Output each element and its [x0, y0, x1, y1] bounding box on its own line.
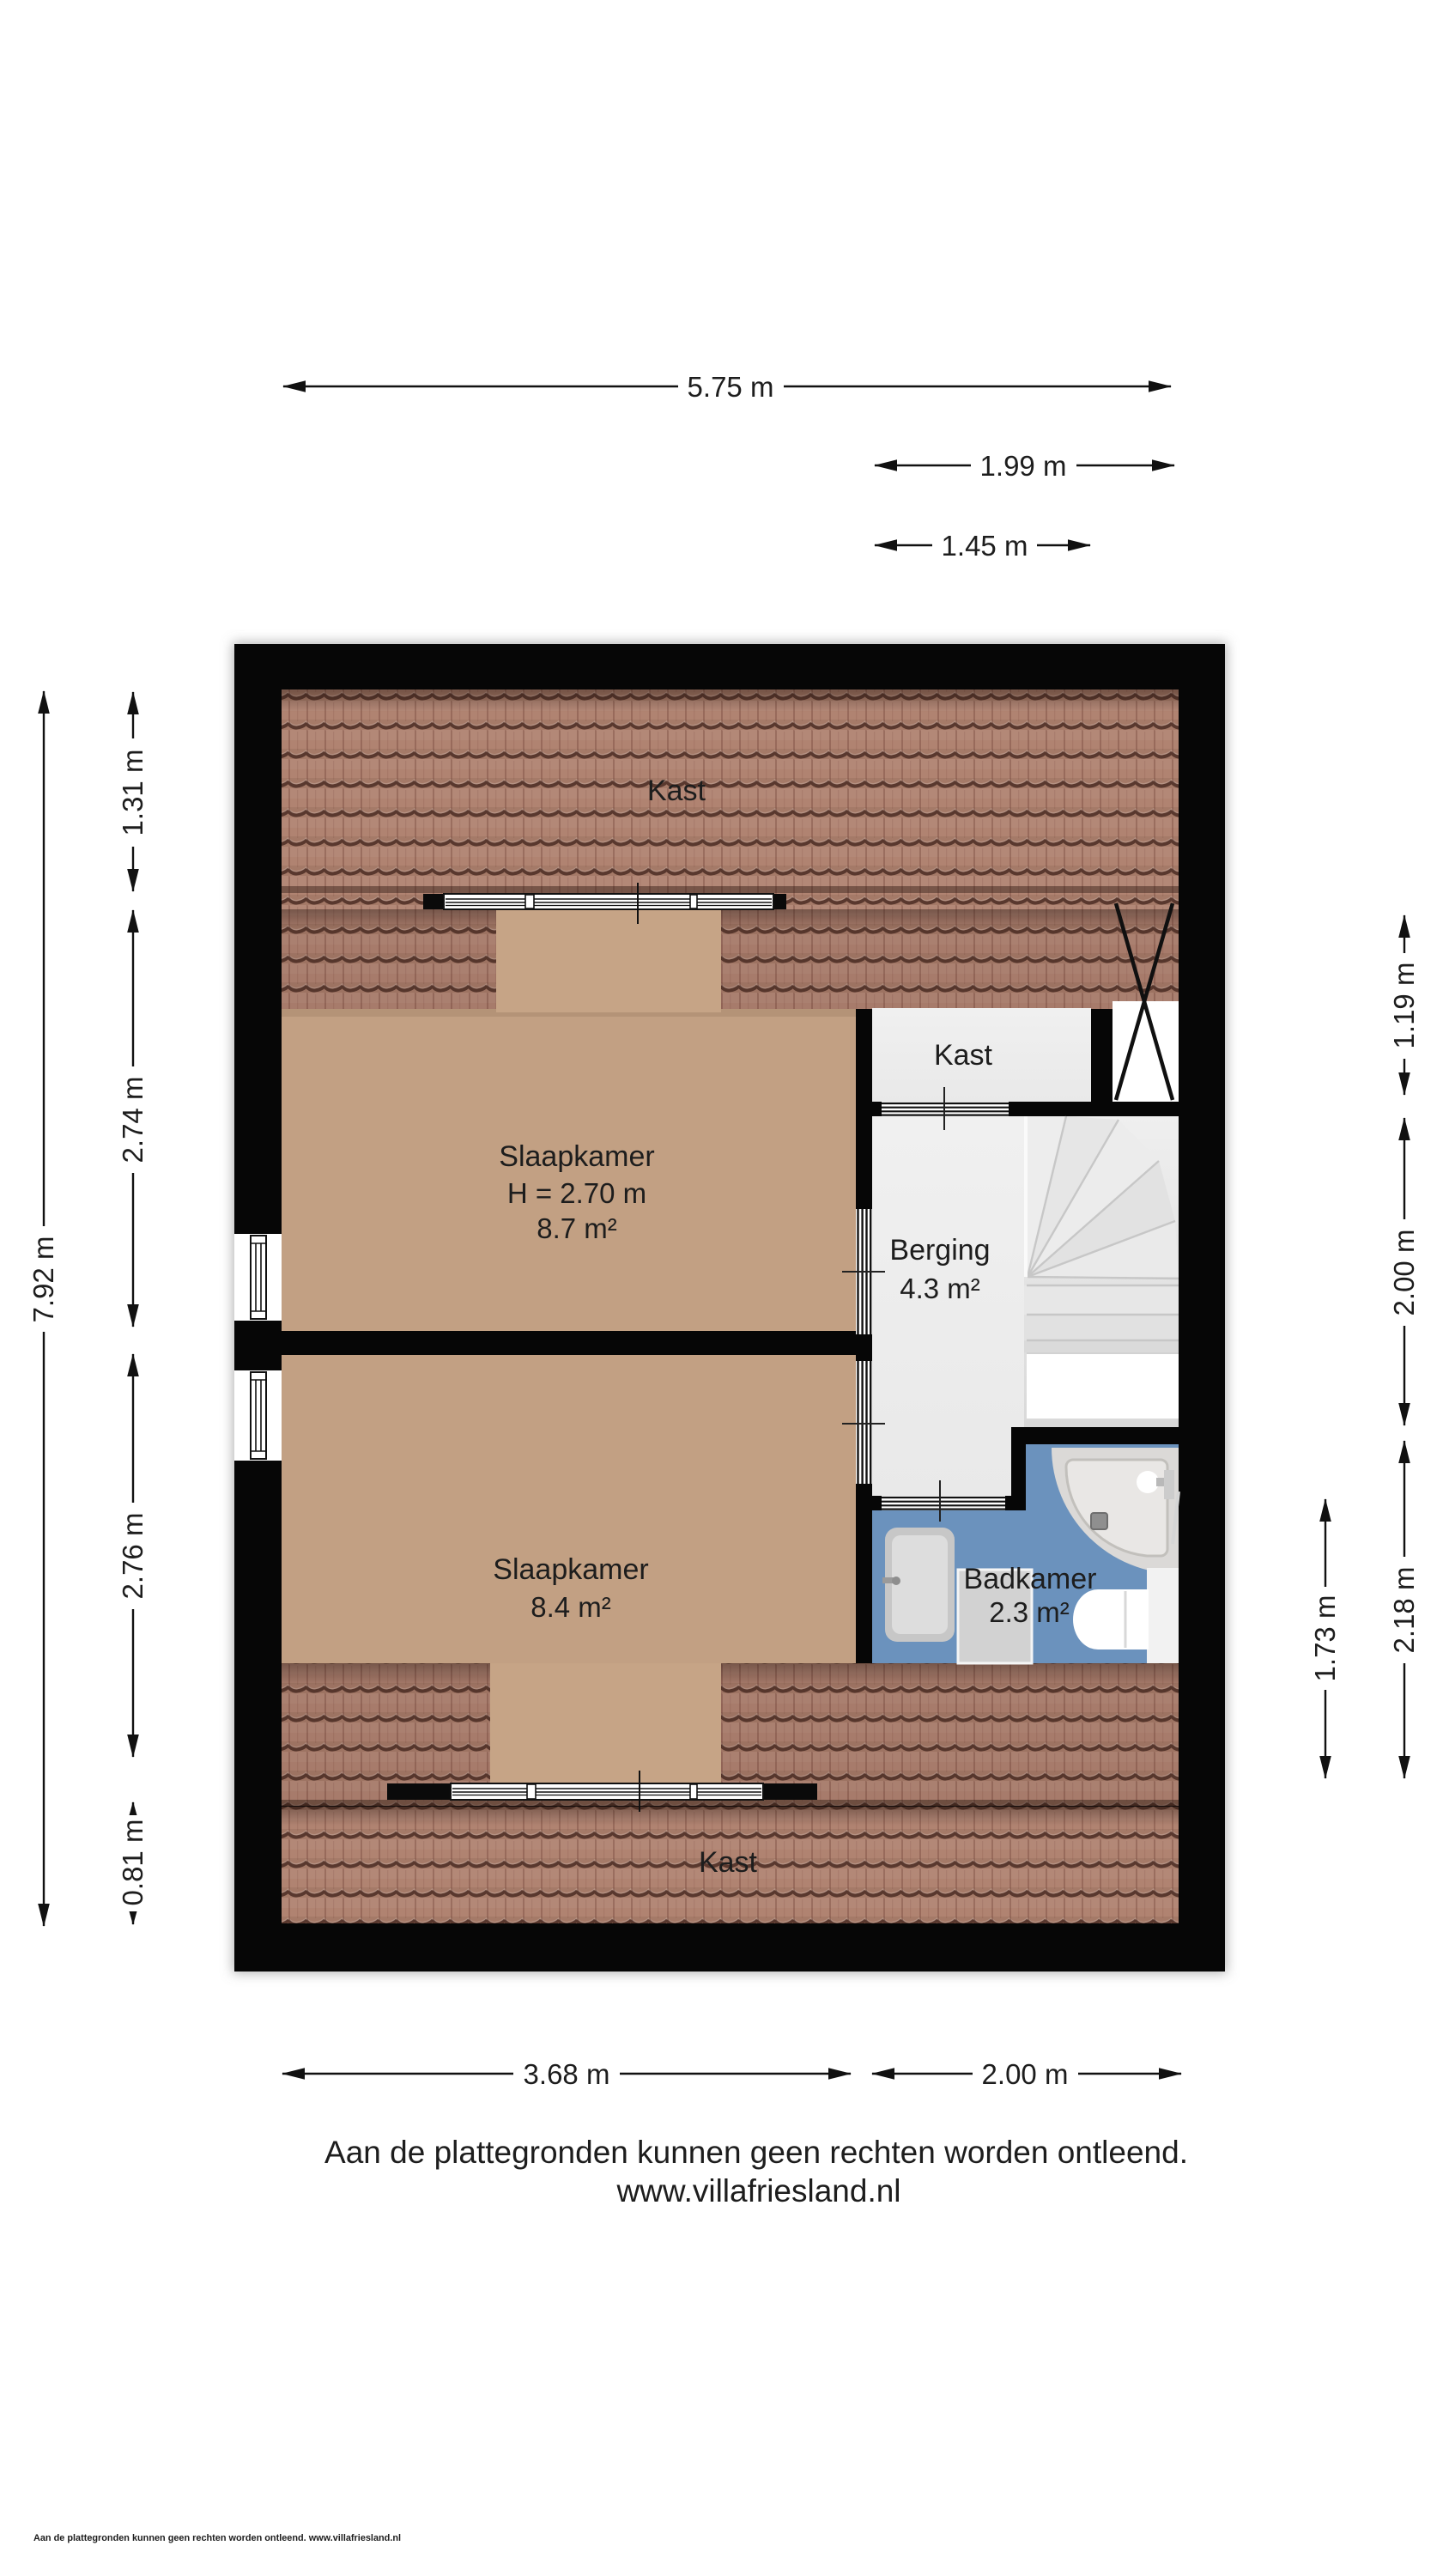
- svg-text:Slaapkamer: Slaapkamer: [499, 1140, 654, 1173]
- svg-text:2.00 m: 2.00 m: [1388, 1230, 1420, 1316]
- svg-text:1.31 m: 1.31 m: [117, 750, 149, 836]
- svg-text:1.73 m: 1.73 m: [1309, 1595, 1341, 1682]
- svg-text:1.19 m: 1.19 m: [1388, 963, 1420, 1049]
- svg-text:H = 2.70 m: H = 2.70 m: [507, 1177, 646, 1209]
- svg-text:Kast: Kast: [647, 775, 706, 807]
- svg-text:2.74 m: 2.74 m: [117, 1077, 149, 1163]
- svg-text:7.92 m: 7.92 m: [27, 1236, 59, 1323]
- svg-text:1.99 m: 1.99 m: [980, 450, 1067, 482]
- svg-text:Aan de plattegronden kunnen ge: Aan de plattegronden kunnen geen rechten…: [324, 2135, 1188, 2170]
- svg-text:2.18 m: 2.18 m: [1388, 1567, 1420, 1654]
- svg-text:4.3 m²: 4.3 m²: [900, 1273, 980, 1304]
- svg-text:Badkamer: Badkamer: [964, 1563, 1097, 1595]
- svg-text:Kast: Kast: [699, 1846, 758, 1879]
- svg-text:5.75 m: 5.75 m: [688, 371, 774, 403]
- svg-text:Aan de plattegronden kunnen ge: Aan de plattegronden kunnen geen rechten…: [33, 2533, 401, 2543]
- svg-text:0.81 m: 0.81 m: [117, 1820, 149, 1906]
- svg-text:Berging: Berging: [889, 1234, 990, 1267]
- svg-text:Kast: Kast: [934, 1039, 993, 1072]
- svg-text:8.4 m²: 8.4 m²: [530, 1591, 611, 1623]
- svg-text:2.3 m²: 2.3 m²: [989, 1596, 1070, 1628]
- svg-text:2.00 m: 2.00 m: [982, 2058, 1069, 2090]
- svg-text:www.villafriesland.nl: www.villafriesland.nl: [615, 2173, 900, 2208]
- svg-text:Slaapkamer: Slaapkamer: [493, 1553, 648, 1586]
- svg-text:8.7 m²: 8.7 m²: [537, 1212, 617, 1244]
- svg-text:3.68 m: 3.68 m: [524, 2058, 610, 2090]
- svg-text:1.45 m: 1.45 m: [942, 530, 1028, 562]
- svg-text:2.76 m: 2.76 m: [117, 1513, 149, 1600]
